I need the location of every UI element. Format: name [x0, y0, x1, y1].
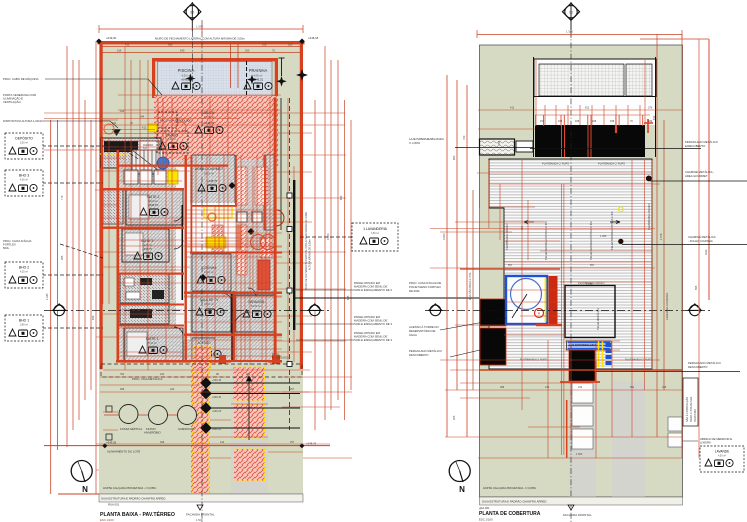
svg-text:500L: 500L [3, 246, 10, 250]
svg-text:180: 180 [288, 43, 293, 47]
svg-text:144: 144 [220, 441, 225, 444]
svg-text:PLANTA BAIXA - PAV.TÉRREO: PLANTA BAIXA - PAV.TÉRREO [100, 510, 175, 518]
svg-text:557: 557 [508, 264, 513, 267]
svg-text:PRAINHA: PRAINHA [249, 68, 268, 73]
svg-text:PROJ. CABO DE MÁQUINA: PROJ. CABO DE MÁQUINA [3, 77, 39, 81]
svg-text:BHO 2: BHO 2 [19, 266, 29, 270]
svg-text:FOSSA SÉPTICA: FOSSA SÉPTICA [120, 426, 142, 431]
svg-text:770: 770 [60, 195, 64, 200]
svg-text:1.056: 1.056 [600, 235, 607, 238]
svg-text:SUITE 3: SUITE 3 [141, 239, 154, 243]
svg-text:812: 812 [585, 107, 590, 110]
svg-text:+649,25: +649,25 [212, 410, 222, 413]
svg-text:I= 2,80%: I= 2,80% [409, 141, 421, 145]
svg-text:258: 258 [120, 388, 125, 391]
svg-text:16,00 m²: 16,00 m² [251, 305, 261, 308]
svg-text:640: 640 [180, 49, 185, 53]
svg-text:1.576: 1.576 [659, 233, 663, 240]
svg-text:PLATIBANDA C/ RUFO: PLATIBANDA C/ RUFO [542, 162, 569, 166]
svg-text:DISPOSITIVO ALTURA 1,00m: DISPOSITIVO ALTURA 1,00m [3, 119, 41, 123]
svg-text:SUITE 1: SUITE 1 [146, 337, 159, 341]
svg-text:1.500: 1.500 [566, 30, 573, 34]
svg-text:498: 498 [160, 441, 165, 444]
svg-text:PROJ. VIGA PERGOLADO: PROJ. VIGA PERGOLADO [160, 119, 192, 123]
svg-text:PLATIBANDA C/ RUFO: PLATIBANDA C/ RUFO [598, 162, 625, 166]
svg-text:20,00 m²: 20,00 m² [204, 115, 214, 119]
svg-text:457: 457 [521, 225, 524, 230]
svg-text:595: 595 [694, 285, 698, 290]
svg-text:770: 770 [91, 145, 95, 150]
svg-text:168: 168 [592, 120, 597, 123]
svg-text:PLATIBANDA C/RUFO: PLATIBANDA C/RUFO [647, 204, 651, 230]
svg-text:157: 157 [540, 120, 545, 123]
svg-text:BHO 3: BHO 3 [19, 174, 29, 178]
svg-text:90: 90 [190, 11, 194, 15]
svg-text:210: 210 [545, 386, 550, 389]
svg-text:645: 645 [346, 295, 350, 300]
svg-text:15,00 m²: 15,00 m² [147, 342, 157, 345]
svg-text:168: 168 [610, 120, 615, 123]
svg-text:+648,05: +648,05 [204, 121, 215, 125]
svg-text:ANAERÓBIO: ANAERÓBIO [144, 429, 161, 434]
svg-text:SOM E ESPAÇAMENTO DE 3: SOM E ESPAÇAMENTO DE 3 [354, 288, 392, 292]
svg-text:3.000: 3.000 [326, 233, 330, 240]
svg-text:DEPÓSITO: DEPÓSITO [15, 136, 33, 141]
svg-text:gSA 001: gSA 001 [479, 506, 490, 510]
svg-text:+648,75: +648,75 [207, 179, 218, 183]
svg-text:248: 248 [662, 386, 667, 389]
svg-text:ESC 1/100: ESC 1/100 [479, 518, 493, 522]
svg-text:ÁGUA: ÁGUA [409, 333, 417, 337]
svg-text:MASO J LTDA ME SRA: MASO J LTDA ME SRA [690, 396, 693, 422]
svg-text:LAJE IMPERMEABILIZADA: LAJE IMPERMEABILIZADA [569, 344, 597, 347]
svg-text:S.P.: S.P. [143, 147, 148, 150]
svg-text:PLATIBANDA C/ RUFO: PLATIBANDA C/ RUFO [520, 358, 547, 362]
svg-text:LIMITE CALÇADA PROJETADA - I=3: LIMITE CALÇADA PROJETADA - I=3,08% [483, 486, 536, 490]
svg-text:635: 635 [91, 315, 95, 320]
svg-text:1 LAVANDERIA: 1 LAVANDERIA [363, 227, 388, 231]
svg-text:264: 264 [250, 388, 255, 391]
svg-text:+648,75: +648,75 [142, 247, 152, 251]
svg-text:SOM E ESPAÇAMENTO DE 3: SOM E ESPAÇAMENTO DE 3 [354, 338, 392, 342]
svg-text:265: 265 [60, 255, 64, 260]
svg-text:264: 264 [498, 140, 501, 145]
svg-text:LIMITE CALÇADA PROJETADA - I=3: LIMITE CALÇADA PROJETADA - I=3,08% [103, 486, 156, 490]
svg-text:PROJ. VIGA METÁLICA: PROJ. VIGA METÁLICA [132, 377, 162, 381]
svg-text:DECK: DECK [203, 110, 214, 115]
svg-text:TELHA METÁLICA: TELHA METÁLICA [596, 308, 600, 330]
svg-text:612: 612 [652, 115, 656, 120]
svg-text:ACESSO: ACESSO [197, 341, 211, 345]
svg-text:+649,20: +649,20 [212, 428, 222, 431]
svg-text:+649,45: +649,45 [212, 379, 222, 382]
svg-text:16,00 m²: 16,00 m² [148, 200, 158, 203]
svg-text:444: 444 [170, 388, 175, 391]
svg-text:800: 800 [452, 155, 456, 160]
svg-text:+648,43: +648,43 [306, 442, 317, 446]
svg-text:657: 657 [590, 264, 595, 267]
svg-text:DESCOBERTO: DESCOBERTO [688, 365, 708, 369]
svg-text:PRAST 600: PRAST 600 [694, 409, 697, 422]
svg-text:30,00 m²: 30,00 m² [204, 172, 214, 176]
svg-text:SUMIDOURO: SUMIDOURO [178, 427, 196, 431]
svg-text:444: 444 [160, 373, 165, 376]
svg-text:412: 412 [510, 107, 515, 110]
svg-text:PLATIBANDA C/RUFO: PLATIBANDA C/RUFO [505, 224, 509, 250]
svg-text:1.500: 1.500 [576, 453, 583, 456]
svg-text:276: 276 [648, 107, 653, 110]
svg-text:MURO DE FECHAMENTO LATERAL COM: MURO DE FECHAMENTO LATERAL COM ALTURA MÁ… [155, 37, 246, 41]
svg-text:ALTURA MÁXIMA DE 3,00m: ALTURA MÁXIMA DE 3,00m [309, 240, 312, 270]
svg-text:412: 412 [142, 127, 147, 130]
svg-text:405: 405 [452, 415, 456, 420]
svg-text:E/RECOBERTO: E/RECOBERTO [685, 144, 706, 148]
svg-text:ÁREA GOURMET: ÁREA GOURMET [685, 174, 708, 178]
svg-text:258: 258 [262, 43, 267, 47]
svg-text:168: 168 [558, 120, 563, 123]
svg-text:257: 257 [290, 441, 295, 444]
svg-text:700: 700 [462, 135, 466, 140]
svg-text:ESC 1/100: ESC 1/100 [100, 518, 114, 522]
svg-text:PLATIBANDA C/ RUFO: PLATIBANDA C/ RUFO [625, 358, 652, 362]
svg-text:FACHADA FRONTAL: FACHADA FRONTAL [186, 513, 215, 517]
svg-text:952: 952 [630, 386, 635, 389]
svg-text:SUITE 2: SUITE 2 [147, 195, 160, 199]
svg-text:762: 762 [120, 373, 125, 376]
svg-text:12,00 m²: 12,00 m² [204, 271, 214, 274]
svg-text:+649,00: +649,00 [106, 36, 117, 40]
svg-text:NÃO É CONSTRUÇÃO: NÃO É CONSTRUÇÃO [686, 397, 689, 422]
svg-text:LAVANDE: LAVANDE [715, 450, 729, 454]
svg-text:260: 260 [245, 49, 250, 53]
svg-text:412: 412 [120, 110, 125, 113]
svg-text:168: 168 [575, 120, 580, 123]
svg-text:FACHADA FRONTAL: FACHADA FRONTAL [563, 513, 592, 517]
svg-text:LIXEIRA: LIXEIRA [700, 441, 711, 445]
svg-text:3,80 m²: 3,80 m² [20, 324, 28, 327]
svg-text:90: 90 [569, 11, 573, 15]
svg-text:210: 210 [578, 386, 583, 389]
svg-text:GUIA ESTRUTURA E PADRÃO CHANFR: GUIA ESTRUTURA E PADRÃO CHANFRO ARRED. [101, 496, 166, 501]
svg-text:DESCOBERTO: DESCOBERTO [409, 353, 429, 357]
svg-text:4,25 m²: 4,25 m² [20, 271, 28, 274]
svg-text:DE 500L: DE 500L [409, 289, 420, 293]
svg-text:SALA DE TV: SALA DE TV [200, 298, 220, 302]
svg-text:690: 690 [339, 195, 343, 200]
svg-text:PLANTA DE COBERTURA: PLANTA DE COBERTURA [479, 511, 541, 517]
svg-text:BHO 1: BHO 1 [19, 319, 29, 323]
svg-text:1.345: 1.345 [45, 293, 49, 300]
svg-text:+648,18: +648,18 [308, 36, 319, 40]
svg-text:GUIA ESTRUTURA E PADRÃO CHANFR: GUIA ESTRUTURA E PADRÃO CHANFRO ARRED. [482, 499, 547, 504]
svg-text:SOM E ESPAÇAMENTO DE 3: SOM E ESPAÇAMENTO DE 3 [354, 322, 392, 326]
svg-text:164: 164 [117, 49, 122, 53]
svg-text:ALINHAMENTO DO LOTE: ALINHAMENTO DO LOTE [107, 450, 140, 454]
svg-text:3.000: 3.000 [442, 233, 446, 240]
svg-text:18,00 m²: 18,00 m² [204, 303, 214, 306]
svg-text:488: 488 [500, 386, 505, 389]
svg-text:4,50 m²: 4,50 m² [718, 455, 726, 458]
svg-text:- FOLHO COZINHA: - FOLHO COZINHA [688, 239, 713, 243]
svg-text:N: N [82, 485, 88, 494]
svg-text:868: 868 [168, 43, 173, 47]
svg-text:RUA: RUA [704, 249, 708, 255]
svg-text:310: 310 [246, 373, 251, 376]
svg-text:N: N [459, 485, 465, 494]
svg-text:+648,75: +648,75 [148, 203, 158, 207]
svg-text:3,00 m²: 3,00 m² [20, 142, 28, 145]
svg-text:+649,30: +649,30 [212, 396, 222, 399]
svg-text:1.310: 1.310 [586, 283, 593, 286]
svg-text:VENTILAÇÃO: VENTILAÇÃO [3, 99, 22, 104]
svg-text:ALDEIA DA LOUREIRA: ALDEIA DA LOUREIRA [665, 292, 669, 320]
svg-text:257: 257 [290, 388, 295, 391]
svg-text:14,00 m²: 14,00 m² [142, 244, 152, 247]
svg-text:RUA 001: RUA 001 [108, 503, 120, 507]
svg-text:ÁREA GOURMET: ÁREA GOURMET [195, 167, 224, 171]
svg-text:4,00 m²: 4,00 m² [20, 179, 28, 182]
svg-text:4,50 m²: 4,50 m² [371, 232, 379, 235]
svg-text:412: 412 [125, 43, 130, 47]
svg-text:344: 344 [140, 116, 145, 119]
